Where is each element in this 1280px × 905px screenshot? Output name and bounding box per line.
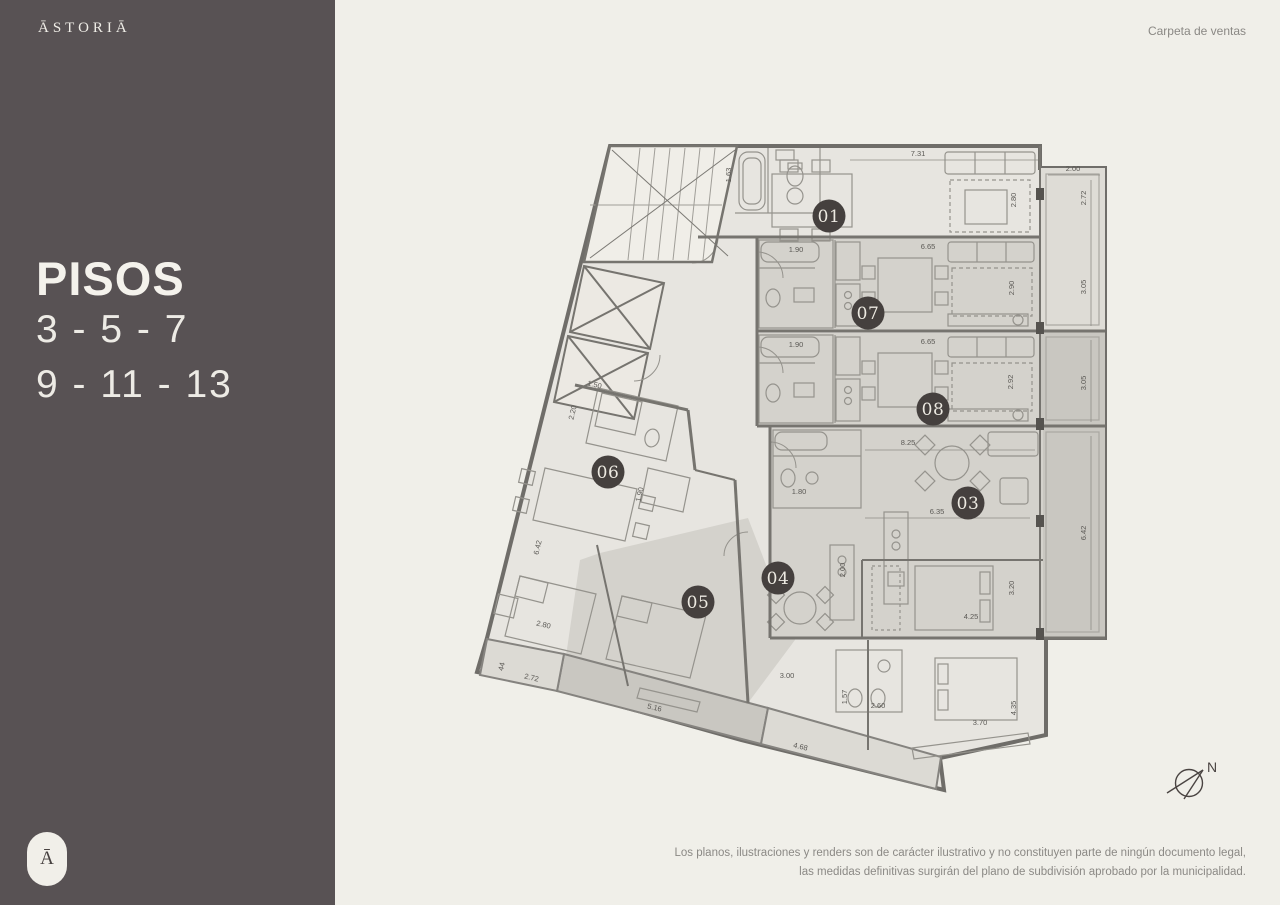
unit-badge: 04 (762, 562, 795, 595)
dimension-label: 1.90 (789, 245, 804, 254)
unit-badge: 01 (813, 200, 846, 233)
north-label: N (1207, 759, 1217, 775)
dimension-label: 2.90 (1007, 281, 1016, 296)
dimension-label: 6.42 (1079, 526, 1088, 541)
dimension-label: 1.63 (724, 168, 733, 183)
dimension-label: 2.60 (871, 701, 886, 710)
dimension-label: 1.57 (840, 690, 849, 705)
dimension-label: 2.72 (1079, 191, 1088, 206)
dimension-label: 8.25 (901, 438, 916, 447)
unit-number: 03 (957, 494, 980, 514)
dimension-label: 3.20 (1007, 581, 1016, 596)
sidebar: ĀSTORIĀ PISOS 3 - 5 - 7 9 - 11 - 13 Ā (0, 0, 335, 905)
unit-badge: 05 (682, 586, 715, 619)
unit-badge: 06 (592, 456, 625, 489)
unit-number: 06 (597, 463, 620, 483)
dimension-label: 2.00 (1066, 164, 1081, 173)
main-content: Carpeta de ventas (335, 0, 1280, 905)
brand-logo: ĀSTORIĀ (38, 20, 131, 37)
north-arrow: N (1167, 759, 1217, 799)
dimension-label: 6.35 (930, 507, 945, 516)
page: ĀSTORIĀ PISOS 3 - 5 - 7 9 - 11 - 13 Ā Ca… (0, 0, 1280, 905)
dimension-label: 7.31 (911, 149, 926, 158)
unit-number: 01 (818, 207, 841, 227)
dimension-label: 3.00 (780, 671, 795, 680)
dimension-label: 4.35 (1009, 701, 1018, 716)
disclaimer: Los planos, ilustraciones y renders son … (675, 844, 1247, 881)
floors-line-2: 9 - 11 - 13 (36, 358, 233, 413)
floor-plan: 7.311.632.002.722.801.906.652.903.051.90… (335, 0, 1280, 905)
unit-number: 07 (857, 304, 880, 324)
dimension-label: 3.70 (973, 718, 988, 727)
dimension-label: 2.80 (1009, 193, 1018, 208)
page-title: PISOS (36, 254, 233, 303)
dimension-label: 3.05 (1079, 280, 1088, 295)
dimension-label: 2.00 (838, 563, 847, 578)
brand-monogram-badge: Ā (27, 832, 67, 886)
dimension-label: 6.65 (921, 242, 936, 251)
floors-block: PISOS 3 - 5 - 7 9 - 11 - 13 (36, 254, 233, 413)
disclaimer-line-2: las medidas definitivas surgirán del pla… (675, 863, 1247, 881)
dimension-label: 6.65 (921, 337, 936, 346)
dimension-label: 4.25 (964, 612, 979, 621)
dimension-label: 1.80 (792, 487, 807, 496)
disclaimer-line-1: Los planos, ilustraciones y renders son … (675, 844, 1247, 862)
unit-number: 08 (922, 400, 945, 420)
unit-badge: 08 (917, 393, 950, 426)
floors-line-1: 3 - 5 - 7 (36, 303, 233, 358)
unit-badge: 03 (952, 487, 985, 520)
dimension-label: 3.05 (1079, 376, 1088, 391)
dimension-label: 1.90 (789, 340, 804, 349)
dimension-label: 2.92 (1006, 375, 1015, 390)
unit-number: 04 (767, 569, 790, 589)
unit-badge: 07 (852, 297, 885, 330)
unit-number: 05 (687, 593, 710, 613)
brand-monogram: Ā (40, 848, 54, 870)
